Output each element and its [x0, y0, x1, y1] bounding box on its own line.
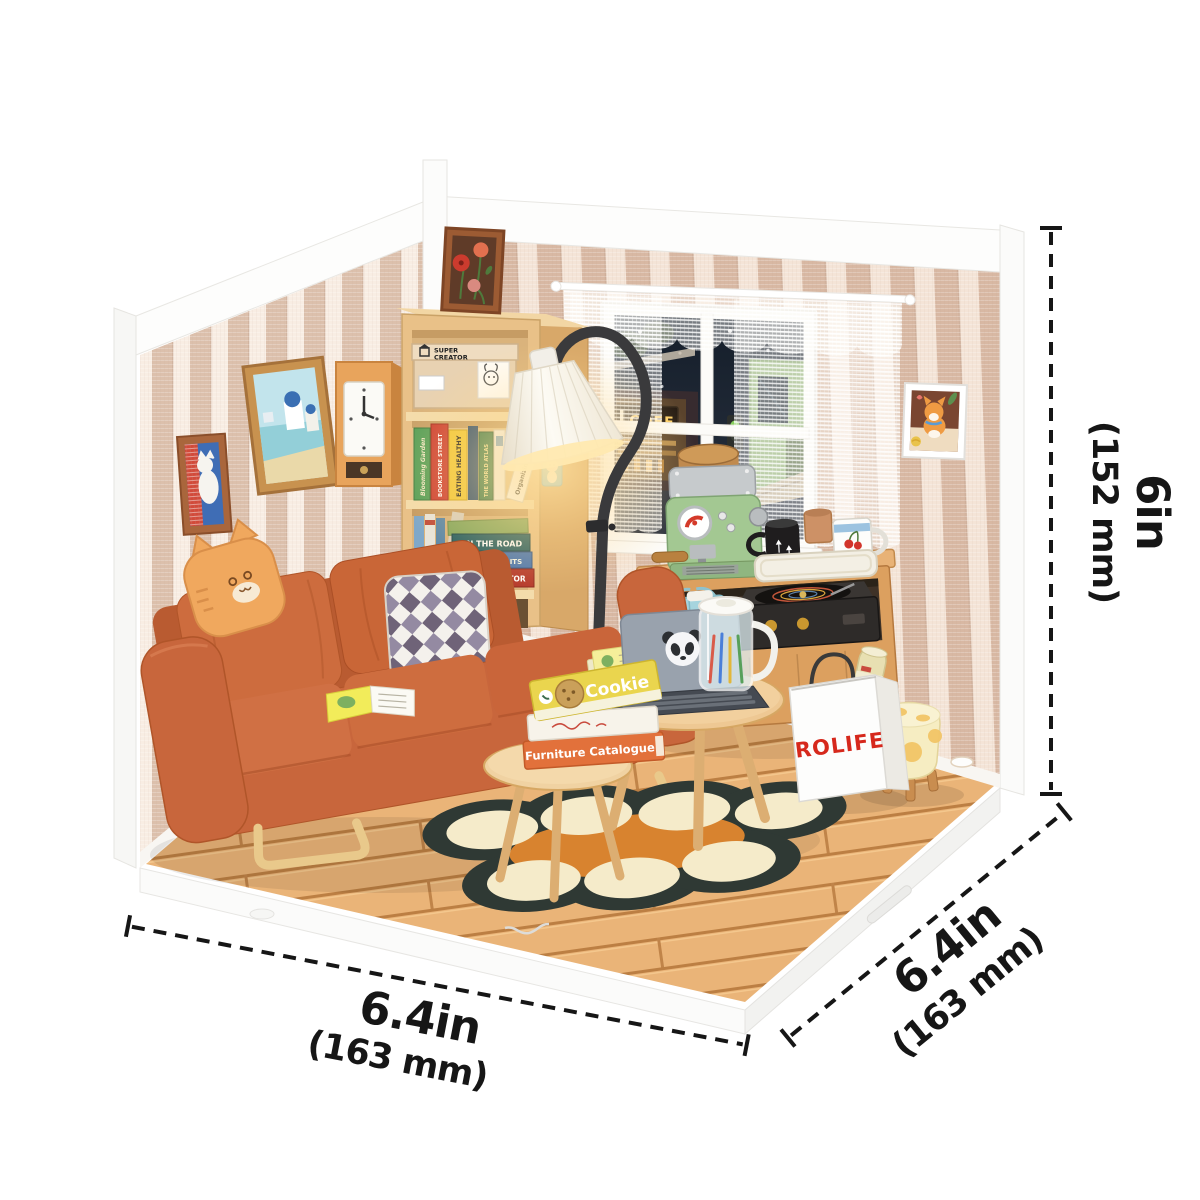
- record-player: [732, 579, 880, 650]
- poppy-picture-frame: [442, 228, 504, 313]
- dimension-height: 6in (152 mm): [1040, 228, 1179, 794]
- cat-picture-frame: [177, 434, 232, 535]
- product-image-miniature-room: COFF SUPER: [0, 0, 1200, 1200]
- height-value: 6in: [1126, 474, 1179, 550]
- height-metric: (152 mm): [1084, 421, 1124, 603]
- storage-box-label-2: CREATOR: [434, 354, 468, 362]
- serving-tray: [754, 550, 877, 582]
- seascape-picture-frame: [243, 357, 338, 494]
- wall-box-clock: [336, 362, 406, 486]
- terracotta-cup: [804, 508, 833, 543]
- scene-canvas: COFF SUPER: [0, 0, 1200, 1200]
- corgi-picture-frame: [902, 383, 967, 459]
